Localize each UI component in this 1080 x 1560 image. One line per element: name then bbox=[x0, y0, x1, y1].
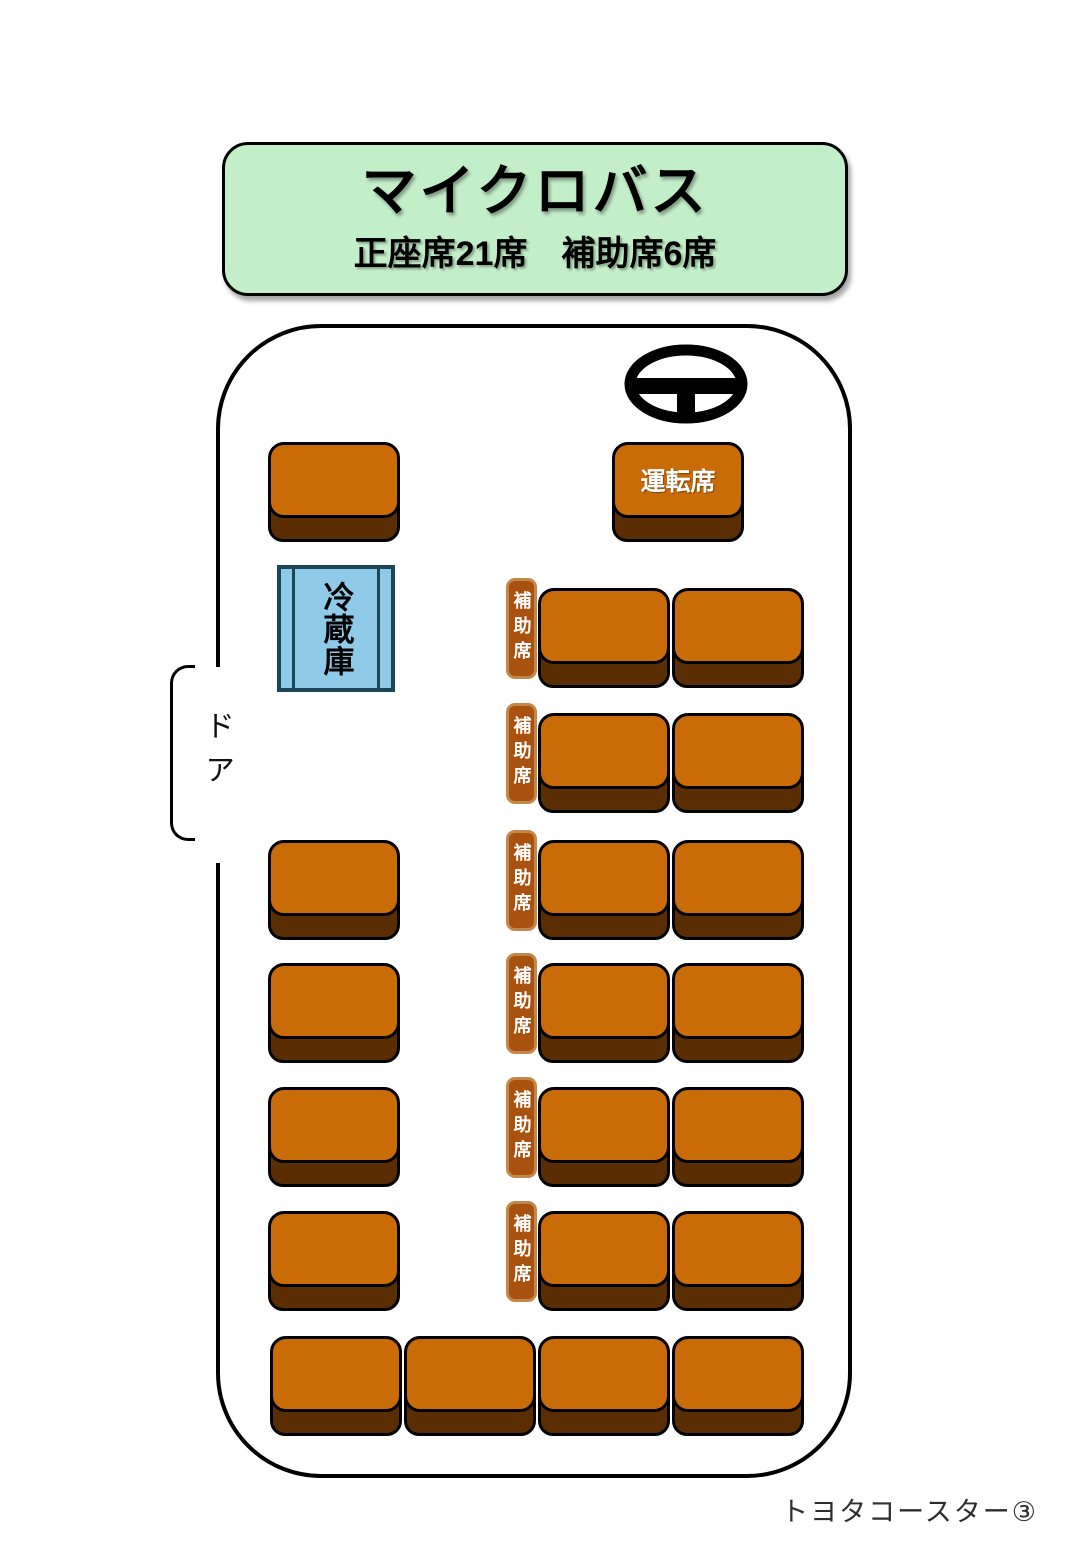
seat bbox=[672, 1336, 804, 1436]
refrigerator-label: 冷蔵庫 bbox=[281, 569, 391, 688]
seat bbox=[538, 963, 670, 1063]
seat bbox=[268, 1087, 400, 1187]
seat bbox=[672, 713, 804, 813]
aux-seat-label: 補助席 bbox=[513, 1214, 531, 1289]
aux-seat-label: 補助席 bbox=[513, 843, 531, 918]
steering-wheel-icon bbox=[624, 344, 748, 424]
seat bbox=[270, 1336, 402, 1436]
driver-seat-label: 運転席 bbox=[612, 442, 744, 518]
aux-seat-label: 補助席 bbox=[513, 1090, 531, 1165]
aux-seat-tab: 補助席 bbox=[506, 830, 537, 931]
seat bbox=[538, 713, 670, 813]
aux-seat-tab: 補助席 bbox=[506, 703, 537, 804]
seat bbox=[268, 963, 400, 1063]
seat bbox=[538, 1336, 670, 1436]
refrigerator: 冷蔵庫 bbox=[277, 565, 395, 692]
seat bbox=[538, 840, 670, 940]
driver-seat: 運転席 bbox=[612, 442, 744, 542]
aux-seat-tab: 補助席 bbox=[506, 953, 537, 1054]
seat bbox=[268, 1211, 400, 1311]
aux-seat-label: 補助席 bbox=[513, 716, 531, 791]
aux-seat-tab: 補助席 bbox=[506, 1201, 537, 1302]
seat bbox=[672, 840, 804, 940]
door-bracket bbox=[170, 665, 195, 841]
seating-chart: マイクロバス 正座席21席 補助席6席 ドア 運転席 冷蔵庫 補助席 bbox=[0, 0, 1080, 1560]
vehicle-model-label: トヨタコースター③ bbox=[700, 1490, 1038, 1529]
aux-seat-tab: 補助席 bbox=[506, 578, 537, 679]
seat bbox=[672, 588, 804, 688]
aux-seat-label: 補助席 bbox=[513, 591, 531, 666]
seat bbox=[538, 1087, 670, 1187]
door-label: ドア bbox=[194, 710, 238, 798]
seat-count-subtitle: 正座席21席 補助席6席 bbox=[354, 226, 717, 275]
seat bbox=[672, 963, 804, 1063]
seat bbox=[538, 588, 670, 688]
seat bbox=[404, 1336, 536, 1436]
aux-seat-tab: 補助席 bbox=[506, 1077, 537, 1178]
seat bbox=[672, 1211, 804, 1311]
bus-type-title: マイクロバス bbox=[362, 163, 709, 221]
aux-seat-label: 補助席 bbox=[513, 966, 531, 1041]
seat bbox=[672, 1087, 804, 1187]
seat bbox=[538, 1211, 670, 1311]
seat bbox=[268, 442, 400, 542]
title-card: マイクロバス 正座席21席 補助席6席 bbox=[222, 142, 848, 296]
seat bbox=[268, 840, 400, 940]
